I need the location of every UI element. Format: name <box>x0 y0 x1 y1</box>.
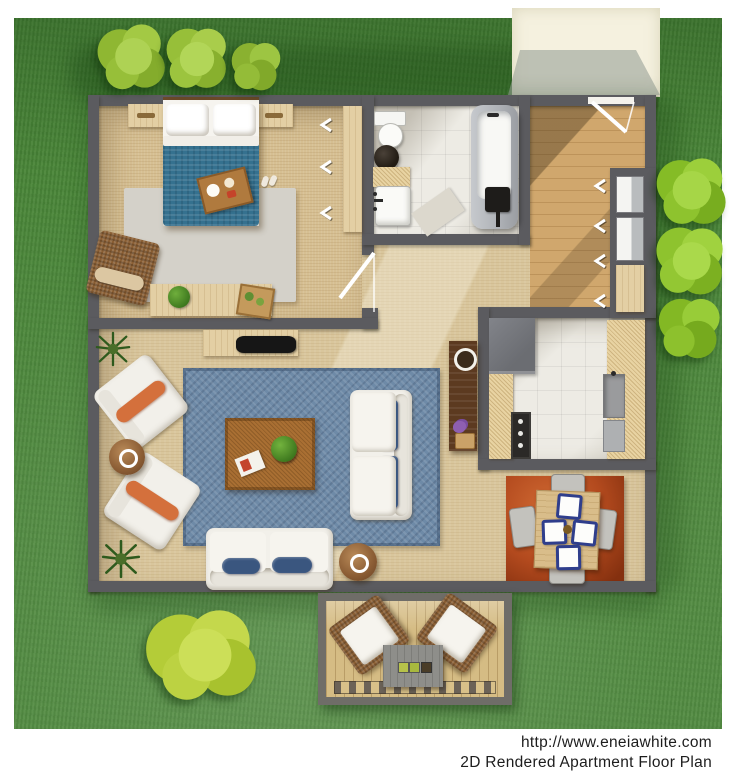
flowers <box>453 421 466 433</box>
pillow <box>213 104 256 136</box>
chevron-icon <box>593 294 608 308</box>
jam <box>226 190 236 199</box>
bush <box>648 288 732 366</box>
table-plant <box>271 436 297 462</box>
burner <box>518 419 523 424</box>
chevron-icon <box>593 219 608 233</box>
bush <box>222 34 290 98</box>
kitchen-counter-left <box>489 374 513 459</box>
entry-door <box>584 96 640 138</box>
plate <box>205 182 221 198</box>
closet-wardrobe <box>343 106 362 232</box>
side-table <box>339 543 377 581</box>
drawer-handle <box>137 113 155 118</box>
place-setting <box>556 493 583 520</box>
console-table <box>449 341 477 451</box>
sofa-cushion <box>352 392 396 452</box>
candle <box>409 662 420 673</box>
floor-plant <box>100 537 142 581</box>
faucet-icon <box>611 371 616 376</box>
blanket-roll <box>93 266 145 293</box>
toilet-bowl <box>378 123 403 148</box>
bath-counter <box>373 167 410 187</box>
kitchen-sink <box>603 374 625 418</box>
chevron-icon <box>593 254 608 268</box>
sofa <box>350 390 412 520</box>
caption: http://www.eneiawhite.com 2D Rendered Ap… <box>460 733 712 774</box>
tv <box>236 336 296 353</box>
refrigerator <box>489 318 535 374</box>
nightstand-right <box>256 104 293 127</box>
place-setting <box>556 545 581 570</box>
coffee-table <box>225 418 315 490</box>
chevron-icon <box>319 160 334 174</box>
succulent <box>255 297 264 306</box>
bathtub-basin <box>477 111 511 199</box>
drawer-handle <box>265 113 283 118</box>
caption-url: http://www.eneiawhite.com <box>460 733 712 753</box>
wall-bedroom-bottom <box>88 318 378 329</box>
caption-title: 2D Rendered Apartment Floor Plan <box>460 753 712 773</box>
deck-table <box>383 645 443 687</box>
shower-fixture-icon <box>485 187 510 212</box>
faucet-handle <box>373 207 377 211</box>
orange-throw <box>123 478 181 523</box>
side-table <box>109 439 145 475</box>
decor-tray <box>236 283 275 319</box>
bedroom-door <box>332 248 380 316</box>
window <box>616 217 644 261</box>
duvet-fold <box>163 136 259 146</box>
orange-throw <box>113 378 168 426</box>
window <box>616 176 644 213</box>
tub-faucet-icon <box>487 113 499 117</box>
loveseat-pillow <box>272 557 312 573</box>
faucet-handle <box>373 192 377 196</box>
burner <box>518 431 523 436</box>
succulent <box>244 291 254 301</box>
dining-table <box>534 490 601 570</box>
window-seat <box>616 265 644 312</box>
wall-kitchen-bottom <box>478 459 656 470</box>
candle <box>398 662 409 673</box>
sofa-cushion <box>352 456 396 516</box>
potted-plant <box>168 286 190 308</box>
chevron-icon <box>319 118 334 132</box>
shower-stem <box>496 211 500 227</box>
pillow <box>166 104 209 136</box>
burner <box>518 443 523 448</box>
cup <box>223 177 235 189</box>
wall-bath-right <box>519 95 530 245</box>
wall-bath-bottom <box>362 234 530 245</box>
basket <box>455 433 475 449</box>
floor-plan-scene: http://www.eneiawhite.com 2D Rendered Ap… <box>0 0 736 780</box>
bathtub <box>471 105 518 229</box>
chevron-icon <box>319 206 334 220</box>
stove <box>511 412 531 459</box>
faucet-icon <box>374 199 383 202</box>
place-setting <box>571 519 598 546</box>
vanity-sink <box>375 186 411 226</box>
bush <box>138 600 270 702</box>
candle <box>421 662 432 673</box>
magazine <box>234 450 265 477</box>
loveseat <box>206 528 333 590</box>
floor-plant <box>94 330 132 368</box>
loveseat-pillow <box>222 558 260 574</box>
dishwasher <box>603 420 625 452</box>
chevron-icon <box>593 179 608 193</box>
magazine-cover <box>240 458 252 472</box>
wall-kitchen-left <box>478 307 489 470</box>
nightstand-left <box>128 104 165 127</box>
decor-plate <box>454 348 477 371</box>
